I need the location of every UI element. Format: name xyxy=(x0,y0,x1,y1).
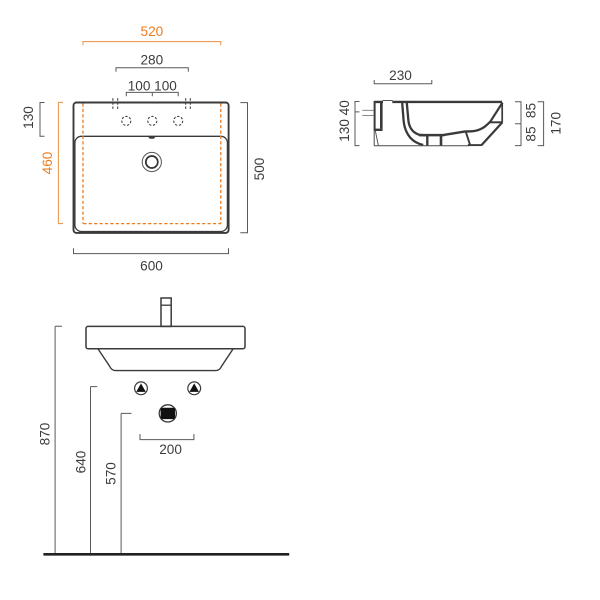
svg-text:570: 570 xyxy=(104,462,119,485)
svg-text:130 40: 130 40 xyxy=(337,100,352,142)
svg-text:85: 85 xyxy=(524,103,539,118)
svg-text:85: 85 xyxy=(524,126,539,141)
svg-text:600: 600 xyxy=(140,259,163,274)
svg-text:500: 500 xyxy=(252,157,267,180)
svg-text:130: 130 xyxy=(21,106,36,129)
svg-text:200: 200 xyxy=(159,442,182,457)
svg-text:230: 230 xyxy=(389,68,412,83)
svg-text:640: 640 xyxy=(74,450,89,473)
svg-text:100 100: 100 100 xyxy=(128,78,178,93)
svg-text:520: 520 xyxy=(141,24,164,39)
svg-text:280: 280 xyxy=(140,52,163,67)
svg-text:870: 870 xyxy=(38,422,53,445)
svg-text:460: 460 xyxy=(40,151,55,174)
svg-text:170: 170 xyxy=(548,112,563,135)
